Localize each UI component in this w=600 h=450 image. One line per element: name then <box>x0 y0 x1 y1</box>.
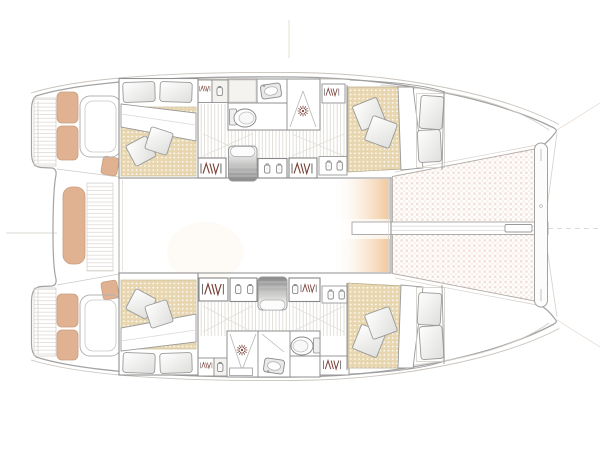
bowsprit-fitting-plate <box>505 225 532 233</box>
corner-rig-top <box>557 103 600 130</box>
jar-icon <box>217 86 222 95</box>
jar-icon <box>293 284 298 293</box>
head-compartment <box>228 79 320 130</box>
headboard-pillow <box>123 352 156 373</box>
cockpit <box>34 92 123 360</box>
forepeak-berth-cushion <box>419 325 444 360</box>
cockpit-deck-planks <box>87 183 113 271</box>
jar-icon <box>277 164 282 173</box>
aft-cabin <box>119 79 198 179</box>
toilet <box>291 337 320 355</box>
hanging-locker <box>320 356 349 375</box>
storage-cabinet <box>258 159 287 179</box>
headboard-pillow <box>160 352 193 373</box>
forward-crossbeam <box>535 143 548 307</box>
catamaran-floorplan: Catamaran deck and accommodation floor p… <box>0 0 600 450</box>
hanging-locker <box>289 158 317 178</box>
forepeak-berth-cushion <box>417 292 442 325</box>
hanging-locker <box>198 158 226 178</box>
port-hull <box>119 79 445 182</box>
headboard-pillow <box>123 81 156 102</box>
companionway-steps <box>229 146 258 181</box>
jar-icon <box>337 161 342 170</box>
toilet <box>230 109 257 127</box>
head-compartment <box>227 331 320 377</box>
cockpit-seat-cushion <box>57 92 78 123</box>
companionway-steps <box>258 277 287 310</box>
transom-steps-top <box>34 98 56 166</box>
jar-icon <box>339 290 344 299</box>
starboard-hull <box>119 273 445 377</box>
inboard-lockers <box>198 157 347 179</box>
faucet-icon <box>263 84 266 87</box>
cockpit-bench <box>63 187 85 264</box>
jar-icon <box>326 161 331 170</box>
hanging-locker <box>198 80 213 103</box>
jar-icon <box>236 284 241 293</box>
jar-icon <box>328 290 333 299</box>
cockpit-seat-cushion <box>57 330 78 360</box>
shower-bench <box>230 368 253 376</box>
forepeak-berth-cushion <box>419 95 444 130</box>
aft-cabin <box>119 273 198 375</box>
headboard-pillow <box>160 81 193 102</box>
forepeak-berth-cushion <box>417 129 442 162</box>
floorplan-canvas: Catamaran deck and accommodation floor p… <box>0 0 600 450</box>
forward-cabin <box>347 283 445 370</box>
jar-icon <box>265 164 270 173</box>
hanging-locker <box>322 84 345 103</box>
corner-rig-bottom <box>557 320 600 347</box>
cockpit-corner-cushion <box>101 156 120 177</box>
faucet-icon <box>267 370 270 373</box>
cockpit-seat-cushion <box>57 126 78 160</box>
cockpit-seat-cushion <box>57 294 78 327</box>
jar-icon <box>218 362 223 371</box>
transom-steps-bottom <box>34 288 56 356</box>
jar-icon <box>248 284 253 293</box>
forward-cabin <box>347 85 445 172</box>
vanity-cabinet <box>229 80 256 102</box>
washbasin <box>260 83 282 100</box>
